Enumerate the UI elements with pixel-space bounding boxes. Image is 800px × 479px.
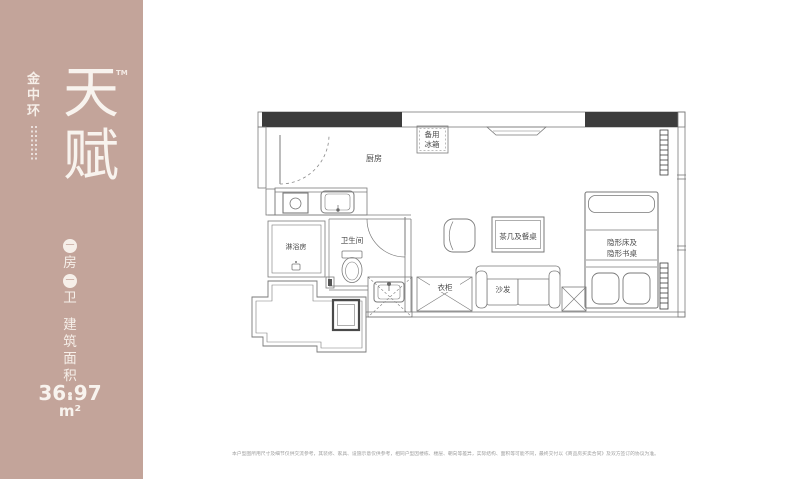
- sink: [321, 191, 354, 213]
- toilet: [342, 251, 362, 283]
- bed-label: 隐形床及: [607, 237, 637, 247]
- sofa: [476, 266, 560, 308]
- building-core: [252, 281, 366, 352]
- radiator: [660, 130, 668, 175]
- kitchen-counter: [266, 188, 367, 215]
- wardrobe-label: 衣柜: [438, 282, 453, 292]
- kitchen-label: 厨房: [366, 153, 382, 163]
- radiator: [660, 263, 668, 309]
- fridge-label: 备用: [425, 129, 440, 139]
- entry-door: [280, 135, 329, 184]
- table-label: 茶几及餐桌: [499, 231, 537, 241]
- pillow: [592, 273, 619, 304]
- disclaimer-text: 本户型图所用尺寸及细节仅供交流参考，其装修、家具、设施示意仅供参考，相同户型因楼…: [232, 452, 682, 458]
- poster-canvas: 金 中 环 天 赋 TM 一 房 一 卫 建 筑 面 积 36.97 m²: [0, 0, 800, 479]
- stove: [283, 193, 308, 213]
- sofa-label: 沙发: [496, 284, 511, 294]
- bed-label: 隐形书桌: [607, 248, 637, 258]
- shower-drain: [292, 264, 300, 270]
- pillow: [623, 273, 650, 304]
- window-ac-unit: [487, 127, 546, 135]
- bathroom-label: 卫生间: [341, 235, 364, 245]
- crossed-cabinet: [562, 287, 586, 311]
- floorplan-drawing: 厨房 备用 冰箱 淋浴房 卫生间 衣柜 茶几及餐桌 沙发 隐形床及 隐形书桌: [0, 0, 800, 479]
- fridge-label: 冰箱: [425, 139, 440, 149]
- bathroom-door: [367, 217, 405, 257]
- shower-room-label: 淋浴房: [286, 242, 307, 251]
- armchair: [444, 219, 475, 252]
